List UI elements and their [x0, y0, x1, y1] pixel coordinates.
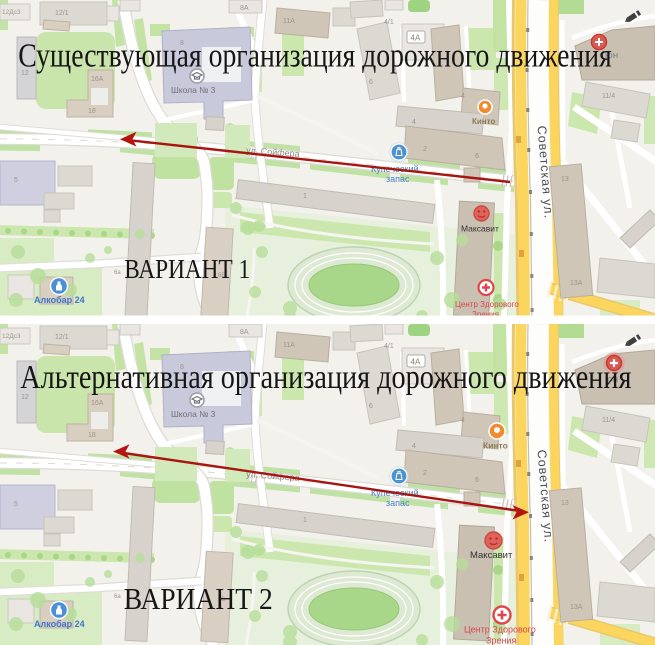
- svg-text:Максавит: Максавит: [470, 550, 513, 561]
- svg-text:ВАРИАНТ 2: ВАРИАНТ 2: [124, 583, 273, 617]
- svg-text:Зрения: Зрения: [486, 636, 516, 645]
- svg-text:Центр Здорового: Центр Здорового: [455, 300, 519, 309]
- svg-text:ВАРИАНТ 1: ВАРИАНТ 1: [124, 255, 250, 284]
- svg-text:Центр Здорового: Центр Здорового: [464, 625, 536, 635]
- svg-text:Кинто: Кинто: [483, 441, 508, 451]
- svg-text:Кинто: Кинто: [472, 117, 495, 126]
- svg-text:Альтернативная организация дор: Альтернативная организация дорожного дви…: [20, 358, 631, 396]
- svg-text:Максавит: Максавит: [461, 224, 499, 234]
- svg-text:Существующая организация дорож: Существующая организация дорожного движе…: [18, 36, 611, 74]
